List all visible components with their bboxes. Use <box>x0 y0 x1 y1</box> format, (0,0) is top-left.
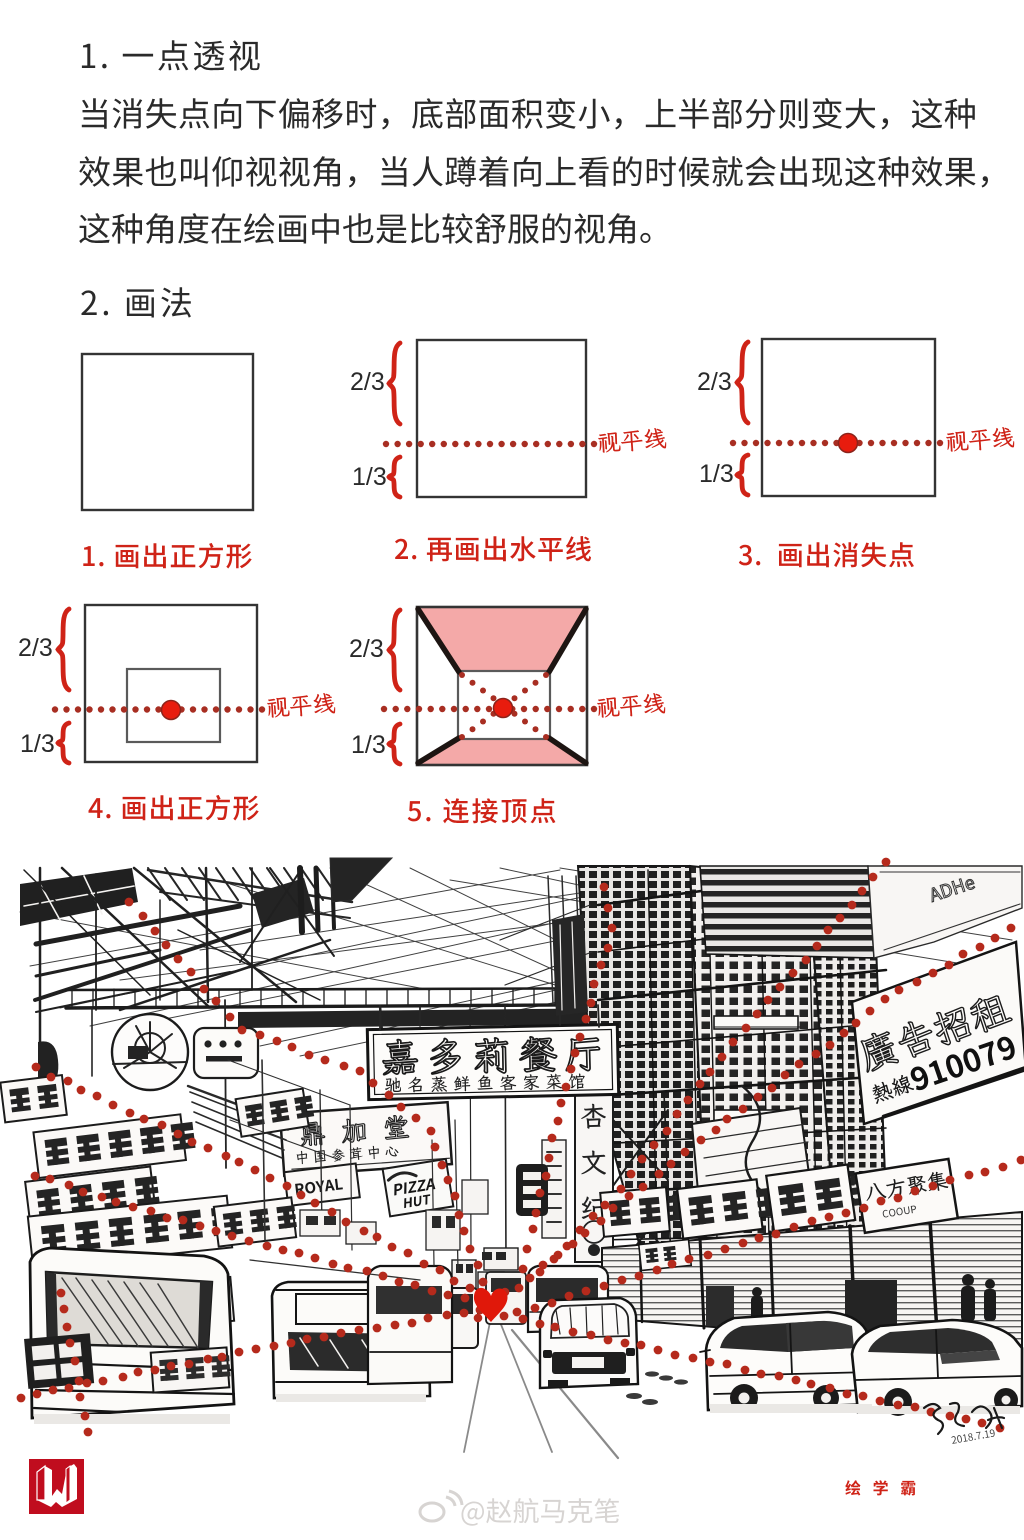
svg-text:1/3: 1/3 <box>351 731 386 759</box>
svg-text:1/3: 1/3 <box>20 730 55 758</box>
svg-text:1/3: 1/3 <box>699 460 734 488</box>
svg-text:2/3: 2/3 <box>697 368 732 396</box>
svg-text:2/3: 2/3 <box>350 368 385 396</box>
svg-text:2/3: 2/3 <box>18 634 53 662</box>
svg-text:1/3: 1/3 <box>352 463 387 491</box>
svg-text:2/3: 2/3 <box>349 635 384 663</box>
